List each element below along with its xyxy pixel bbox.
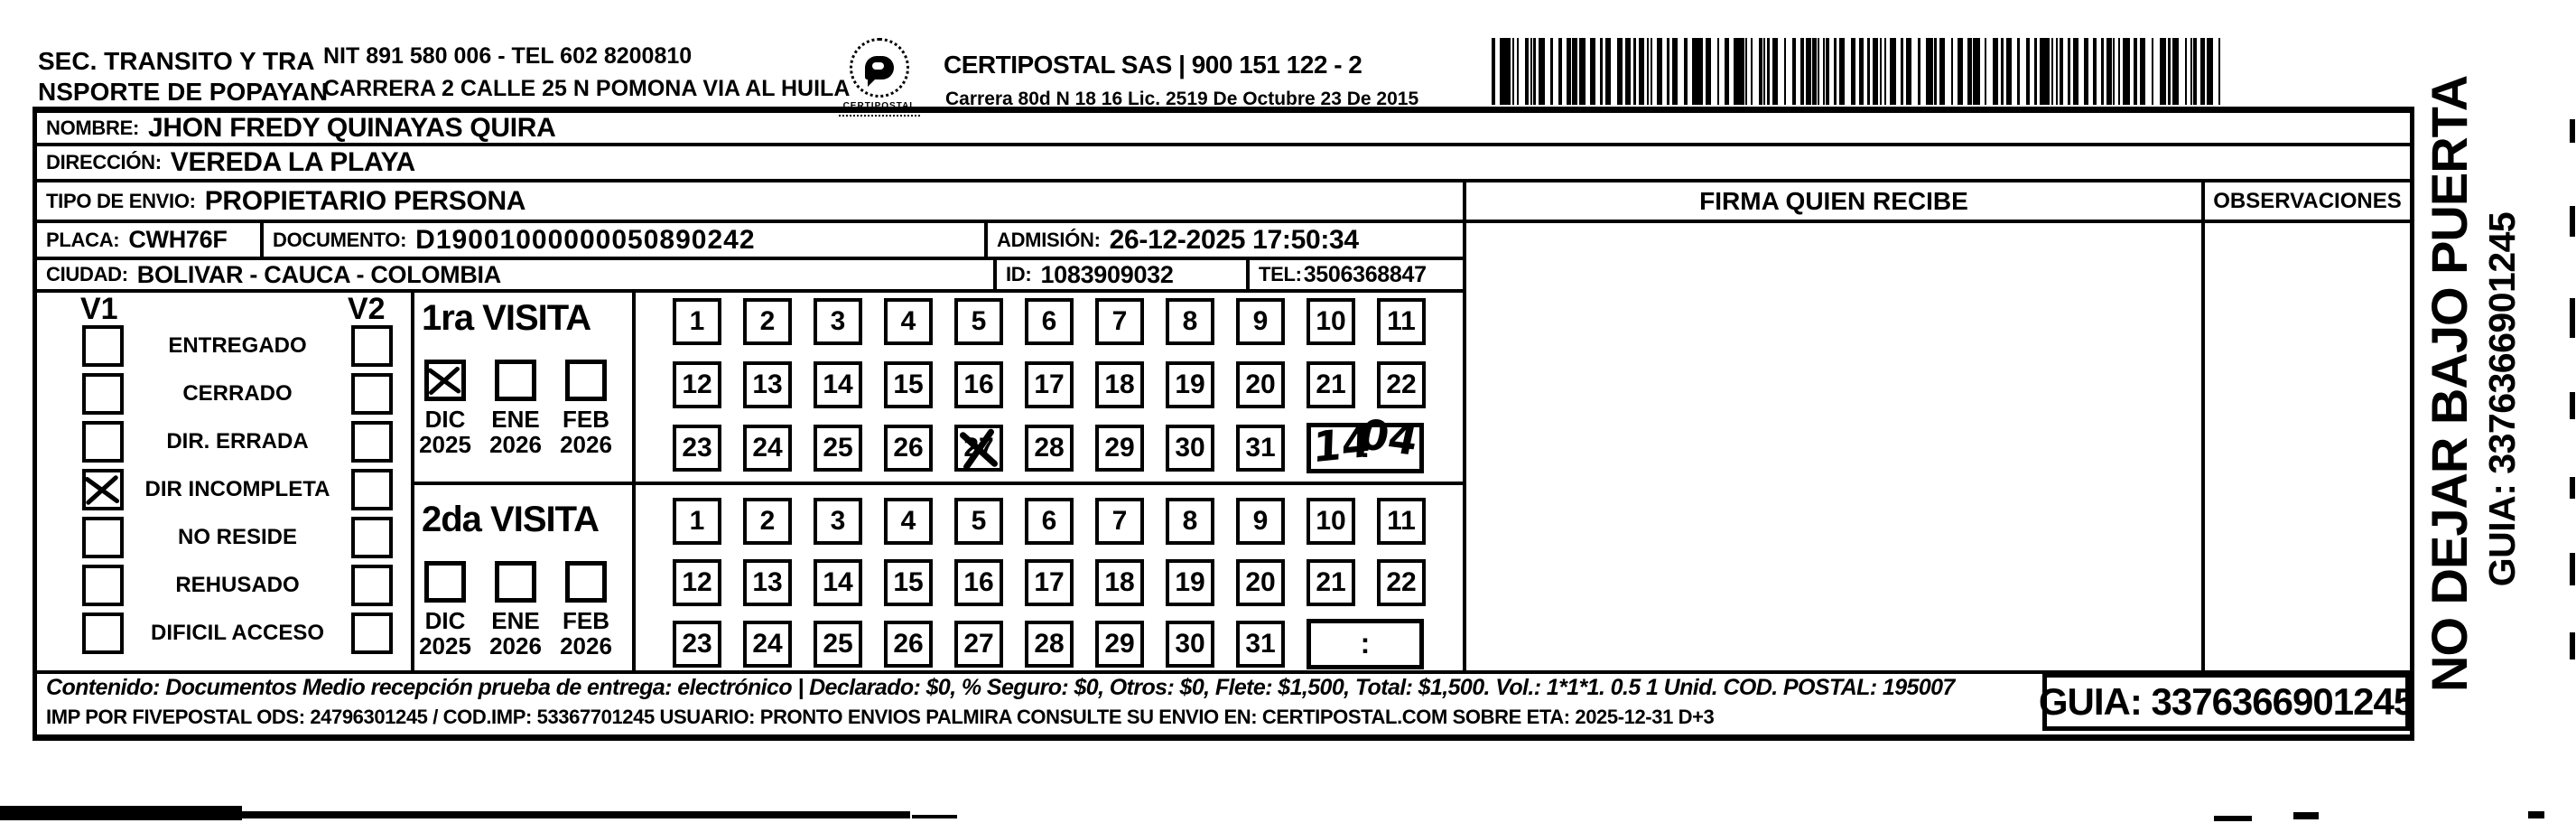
day-row: 232425262728293031: — [632, 621, 1466, 668]
month-checkbox-dic-2025 — [424, 561, 466, 603]
time-separator: : — [1311, 627, 1419, 660]
visit-2-day-cell-22: 22 — [1377, 559, 1426, 606]
visit-1-day-cell-5: 5 — [954, 298, 1003, 345]
visit-1-day-cell-15: 15 — [884, 361, 933, 408]
scan-artifact — [226, 811, 910, 818]
observaciones-header: OBSERVACIONES — [2205, 182, 2410, 220]
nombre-field: NOMBRE: JHON FREDY QUINAYAS QUIRA — [37, 113, 1301, 143]
visit-2-day-cell-2: 2 — [743, 498, 792, 545]
visit-1-day-cell-14: 14 — [814, 361, 862, 408]
status-label-dir-incompleta: DIR INCOMPLETA — [124, 466, 351, 513]
visit-1-day-cell-2: 2 — [743, 298, 792, 345]
logo-bubble-glyph — [865, 56, 894, 79]
visit-2-day-cell-14: 14 — [814, 559, 862, 606]
status-row-dir-errada: DIR. ERRADA — [37, 418, 411, 466]
visit-2-day-cell-16: 16 — [954, 559, 1003, 606]
v2-checkbox-no-reside — [351, 517, 393, 558]
visit-2-day-cell-6: 6 — [1025, 498, 1074, 545]
status-label-dir-errada: DIR. ERRADA — [124, 418, 351, 465]
scan-artifact — [2570, 632, 2575, 659]
visit-2-day-cell-3: 3 — [814, 498, 862, 545]
tipo-envio-field: TIPO DE ENVIO: PROPIETARIO PERSONA — [37, 182, 1301, 220]
month-year: 2026 — [553, 633, 618, 659]
month-checkbox-ene-2026 — [495, 561, 536, 603]
month-checkbox-dic-2025 — [424, 360, 466, 401]
month-label: FEB — [553, 407, 618, 432]
sender-nit-tel: NIT 891 580 006 - TEL 602 8200810 — [323, 43, 692, 70]
visit-2-day-cell-15: 15 — [884, 559, 933, 606]
month-label: FEB — [553, 608, 618, 633]
month-dic-2025: DIC2025 — [413, 561, 478, 659]
contenido-line: Contenido: Documentos Medio recepción pr… — [46, 675, 1955, 701]
visit-2-day-cell-17: 17 — [1025, 559, 1074, 606]
status-label-rehusado: REHUSADO — [124, 562, 351, 609]
visit-section-2: 2da VISITA DIC2025ENE2026FEB2026 1234567… — [411, 485, 1466, 670]
v1-checkbox-rehusado — [82, 565, 124, 606]
tel-field: TEL: 3506368847 — [1250, 260, 1463, 289]
id-value: 1083909032 — [1040, 261, 1173, 289]
visit-2-day-cell-29: 29 — [1095, 621, 1144, 668]
admision-field: ADMISIÓN: 26-12-2025 17:50:34 — [988, 223, 1463, 257]
placa-value: CWH76F — [128, 226, 227, 254]
direccion-value: VEREDA LA PLAYA — [171, 147, 415, 178]
visit-2-day-cell-27: 27 — [954, 621, 1003, 668]
day-row: 1213141516171819202122 — [632, 361, 1466, 408]
side-strip: NO DEJAR BAJO PUERTA GUIA: 3376366901245 — [2416, 107, 2532, 692]
v1-checkbox-cerrado — [82, 373, 124, 415]
v1-checkbox-dir-errada — [82, 421, 124, 463]
visit-1-day-cell-4: 4 — [884, 298, 933, 345]
v2-checkbox-dir-incompleta — [351, 469, 393, 510]
scan-artifact — [912, 815, 957, 818]
v2-checkbox-dificil-acceso — [351, 613, 393, 654]
tel-label: TEL: — [1259, 263, 1302, 286]
status-label-no-reside: NO RESIDE — [124, 514, 351, 561]
visit-1-day-cell-9: 9 — [1236, 298, 1285, 345]
imp-line: IMP POR FIVEPOSTAL ODS: 24796301245 / CO… — [46, 706, 1714, 729]
firma-quien-recibe-header: FIRMA QUIEN RECIBE — [1466, 182, 2201, 220]
status-row-rehusado: REHUSADO — [37, 562, 411, 610]
visit-2-day-cell-28: 28 — [1025, 621, 1074, 668]
v2-checkbox-cerrado — [351, 373, 393, 415]
month-ene-2026: ENE2026 — [483, 360, 548, 457]
visit-2-day-cell-7: 7 — [1095, 498, 1144, 545]
visit-2-day-cell-10: 10 — [1307, 498, 1355, 545]
month-year: 2026 — [483, 633, 548, 659]
v1-checkbox-no-reside — [82, 517, 124, 558]
documento-field: DOCUMENTO: D19001000000050890242 — [264, 223, 984, 257]
tracking-barcode-icon — [1492, 38, 2225, 105]
month-checkbox-feb-2026 — [565, 561, 607, 603]
visit-1-time-box: :1404 — [1307, 423, 1424, 473]
month-label: DIC — [413, 407, 478, 432]
visit-2-day-cell-9: 9 — [1236, 498, 1285, 545]
visit-2-day-cell-26: 26 — [884, 621, 933, 668]
month-checkbox-feb-2026 — [565, 360, 607, 401]
nombre-value: JHON FREDY QUINAYAS QUIRA — [148, 113, 556, 143]
v2-checkbox-rehusado — [351, 565, 393, 606]
visit-2-title: 2da VISITA — [422, 500, 599, 540]
scan-artifact — [0, 806, 242, 820]
month-dic-2025: DIC2025 — [413, 360, 478, 457]
status-row-dir-incompleta: DIR INCOMPLETA — [37, 466, 411, 514]
month-year: 2025 — [413, 633, 478, 659]
visit-1-day-cell-18: 18 — [1095, 361, 1144, 408]
visit-1-day-cell-25: 25 — [814, 425, 862, 472]
visit-1-day-cell-10: 10 — [1307, 298, 1355, 345]
v2-checkbox-dir-errada — [351, 421, 393, 463]
no-dejar-bajo-puerta-text: NO DEJAR BAJO PUERTA — [2422, 107, 2478, 692]
sender-name-line1: SEC. TRANSITO Y TRA — [38, 47, 315, 76]
visit-2-day-cell-19: 19 — [1166, 559, 1214, 606]
visit-1-day-cell-19: 19 — [1166, 361, 1214, 408]
status-row-dificil-acceso: DIFICIL ACCESO — [37, 610, 411, 658]
visit-2-day-cell-21: 21 — [1307, 559, 1355, 606]
visit-day-grid: 1234567891011121314151617181920212223242… — [632, 485, 1466, 670]
documento-value: D19001000000050890242 — [415, 225, 755, 256]
tel-value: 3506368847 — [1304, 262, 1427, 288]
observaciones-area — [2205, 223, 2410, 670]
scan-artifact — [2528, 811, 2544, 818]
visit-1-day-cell-11: 11 — [1377, 298, 1426, 345]
visit-1-day-cell-30: 30 — [1166, 425, 1214, 472]
visit-1-day-cell-29: 29 — [1095, 425, 1144, 472]
day-row: 232425262728293031:1404 — [632, 425, 1466, 472]
visit-1-day-cell-27: 27 — [954, 425, 1003, 472]
scan-artifact — [2570, 392, 2575, 419]
visit-1-day-cell-31: 31 — [1236, 425, 1285, 472]
visit-1-day-cell-12: 12 — [673, 361, 721, 408]
visit-2-day-cell-4: 4 — [884, 498, 933, 545]
visit-1-day-cell-13: 13 — [743, 361, 792, 408]
visit-1-day-cell-7: 7 — [1095, 298, 1144, 345]
visit-2-day-cell-20: 20 — [1236, 559, 1285, 606]
tipo-envio-value: PROPIETARIO PERSONA — [205, 186, 525, 217]
v1-checkbox-dir-incompleta — [82, 469, 124, 510]
visit-1-day-cell-20: 20 — [1236, 361, 1285, 408]
scan-artifact — [2570, 298, 2575, 338]
month-label: DIC — [413, 608, 478, 633]
status-row-entregado: ENTREGADO — [37, 323, 411, 370]
visit-1-day-cell-24: 24 — [743, 425, 792, 472]
month-feb-2026: FEB2026 — [553, 360, 618, 457]
visit-2-day-cell-11: 11 — [1377, 498, 1426, 545]
visit-2-day-cell-24: 24 — [743, 621, 792, 668]
visit-1-day-cell-23: 23 — [673, 425, 721, 472]
visit-1-day-cell-28: 28 — [1025, 425, 1074, 472]
status-label-cerrado: CERRADO — [124, 370, 351, 417]
visit-1-day-cell-3: 3 — [814, 298, 862, 345]
v1-checkbox-entregado — [82, 325, 124, 367]
month-ene-2026: ENE2026 — [483, 561, 548, 659]
month-feb-2026: FEB2026 — [553, 561, 618, 659]
handwritten-x-mark — [84, 471, 122, 509]
certipostal-logo-icon — [850, 38, 909, 98]
status-label-entregado: ENTREGADO — [124, 323, 351, 369]
visit-1-day-cell-26: 26 — [884, 425, 933, 472]
visit-2-day-cell-12: 12 — [673, 559, 721, 606]
visit-2-day-cell-23: 23 — [673, 621, 721, 668]
visit-1-day-cell-22: 22 — [1377, 361, 1426, 408]
scan-artifact — [2570, 206, 2575, 237]
direccion-label: DIRECCIÓN: — [46, 151, 162, 174]
scan-artifact — [2570, 119, 2575, 143]
status-label-dificil-acceso: DIFICIL ACCESO — [124, 610, 351, 657]
side-guia-number: GUIA: 3376366901245 — [2478, 107, 2526, 692]
admision-label: ADMISIÓN: — [997, 229, 1101, 252]
day-row: 1234567891011 — [632, 498, 1466, 545]
company-name: CERTIPOSTAL SAS | 900 151 122 - 2 — [944, 51, 1362, 79]
visit-2-time-box: : — [1307, 619, 1424, 669]
v2-checkbox-entregado — [351, 325, 393, 367]
scan-artifact — [2570, 553, 2575, 585]
visit-2-day-cell-5: 5 — [954, 498, 1003, 545]
month-label: ENE — [483, 407, 548, 432]
month-year: 2026 — [553, 432, 618, 457]
ciudad-label: CIUDAD: — [46, 263, 128, 286]
visit-2-day-cell-8: 8 — [1166, 498, 1214, 545]
ciudad-value: BOLIVAR - CAUCA - COLOMBIA — [137, 261, 501, 289]
visit-2-day-cell-30: 30 — [1166, 621, 1214, 668]
visit-2-day-cell-25: 25 — [814, 621, 862, 668]
visit-section-1: 1ra VISITA DIC2025ENE2026FEB2026 1234567… — [411, 293, 1466, 482]
visit-1-day-cell-8: 8 — [1166, 298, 1214, 345]
visit-2-day-cell-18: 18 — [1095, 559, 1144, 606]
v1-checkbox-dificil-acceso — [82, 613, 124, 654]
month-year: 2025 — [413, 432, 478, 457]
firma-quien-recibe-area — [1466, 223, 2201, 670]
visit-2-day-cell-13: 13 — [743, 559, 792, 606]
placa-label: PLACA: — [46, 229, 119, 252]
scan-artifact — [2214, 816, 2252, 821]
id-label: ID: — [1006, 263, 1031, 286]
status-row-cerrado: CERRADO — [37, 370, 411, 418]
visit-1-day-cell-16: 16 — [954, 361, 1003, 408]
visit-1-day-cell-6: 6 — [1025, 298, 1074, 345]
scan-artifact — [2570, 477, 2575, 499]
visit-1-day-cell-1: 1 — [673, 298, 721, 345]
status-row-no-reside: NO RESIDE — [37, 514, 411, 562]
delivery-form-table: NOMBRE: JHON FREDY QUINAYAS QUIRA DIRECC… — [33, 107, 2414, 741]
documento-label: DOCUMENTO: — [273, 229, 406, 252]
handwritten-time-minutes: 04 — [1355, 410, 1423, 465]
sender-address: CARRERA 2 CALLE 25 N POMONA VIA AL HUILA — [323, 76, 850, 102]
status-rows: ENTREGADOCERRADODIR. ERRADADIR INCOMPLET… — [37, 323, 411, 658]
visit-day-grid: 1234567891011121314151617181920212223242… — [632, 293, 1466, 482]
month-year: 2026 — [483, 432, 548, 457]
visit-1-day-cell-21: 21 — [1307, 361, 1355, 408]
tipo-envio-label: TIPO DE ENVIO: — [46, 190, 196, 213]
handwritten-x-mark — [427, 362, 463, 398]
day-row: 1234567891011 — [632, 298, 1466, 345]
visit-2-day-cell-31: 31 — [1236, 621, 1285, 668]
month-checkbox-ene-2026 — [495, 360, 536, 401]
direccion-field: DIRECCIÓN: VEREDA LA PLAYA — [37, 146, 1301, 179]
ciudad-field: CIUDAD: BOLIVAR - CAUCA - COLOMBIA — [37, 260, 993, 289]
visit-1-day-cell-17: 17 — [1025, 361, 1074, 408]
side-strip-rotated-text: NO DEJAR BAJO PUERTA GUIA: 3376366901245 — [2416, 107, 2532, 692]
month-label: ENE — [483, 608, 548, 633]
day-row: 1213141516171819202122 — [632, 559, 1466, 606]
scan-artifact — [2293, 812, 2319, 819]
admision-value: 26-12-2025 17:50:34 — [1110, 225, 1359, 256]
nombre-label: NOMBRE: — [46, 117, 139, 140]
placa-field: PLACA: CWH76F — [37, 223, 260, 257]
id-field: ID: 1083909032 — [997, 260, 1246, 289]
guia-number-box: GUIA: 3376366901245 — [2042, 673, 2410, 731]
visit-1-title: 1ra VISITA — [422, 298, 591, 339]
visit-2-day-cell-1: 1 — [673, 498, 721, 545]
sender-name-line2: NSPORTE DE POPAYAN — [38, 78, 328, 107]
